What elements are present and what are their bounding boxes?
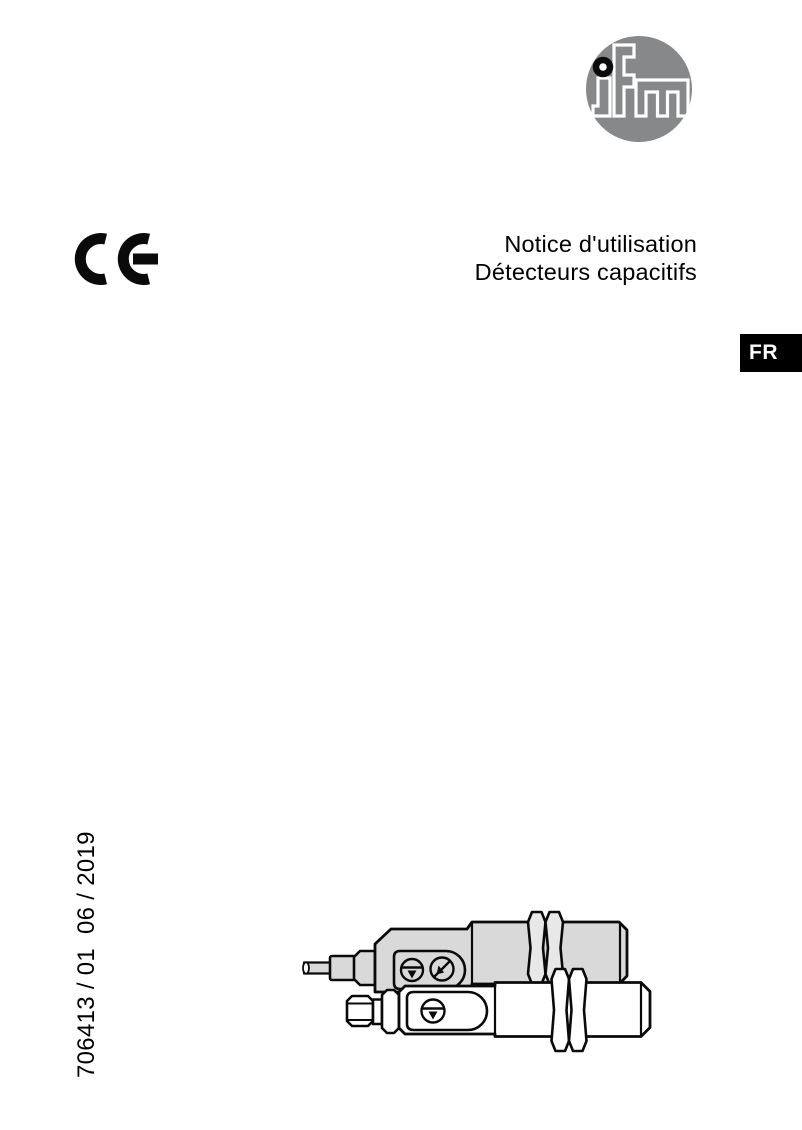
sensor-illustration-graphic [288,893,662,1065]
ce-letter-c [80,238,105,279]
potentiometer-screw-icon [401,959,423,981]
sensor-bottom-panel [407,992,487,1030]
title-line-1: Notice d'utilisation [475,231,697,259]
sensor-bottom-connector [347,996,373,1026]
connector-ring [373,1000,382,1025]
document-title: Notice d'utilisation Détecteurs capaciti… [475,231,697,286]
ce-mark-graphic [68,226,168,294]
title-line-2: Détecteurs capacitifs [475,259,697,287]
logo-i-dot-ring [596,60,610,74]
language-badge-label: FR [749,341,778,364]
sensor-top-gland [354,951,375,985]
hex-nut [569,969,587,1051]
ce-mark [68,226,168,294]
manual-cover-page: Notice d'utilisation Détecteurs capaciti… [0,0,802,1130]
sensor-illustration [288,893,662,1065]
logo-circle [586,36,692,142]
sensor-top-cable-tip [303,962,309,973]
ce-letters [80,238,158,279]
hex-nut [552,969,570,1051]
ifm-logo [575,20,705,150]
language-badge: FR [740,334,802,372]
potentiometer-screw-icon [422,1000,445,1023]
locked-screw-icon [431,958,454,981]
connector-block [382,990,399,1033]
hex-nut [528,912,546,984]
ifm-logo-graphic [575,20,705,150]
document-number: 706413 / 01 06 / 2019 [72,831,101,1078]
